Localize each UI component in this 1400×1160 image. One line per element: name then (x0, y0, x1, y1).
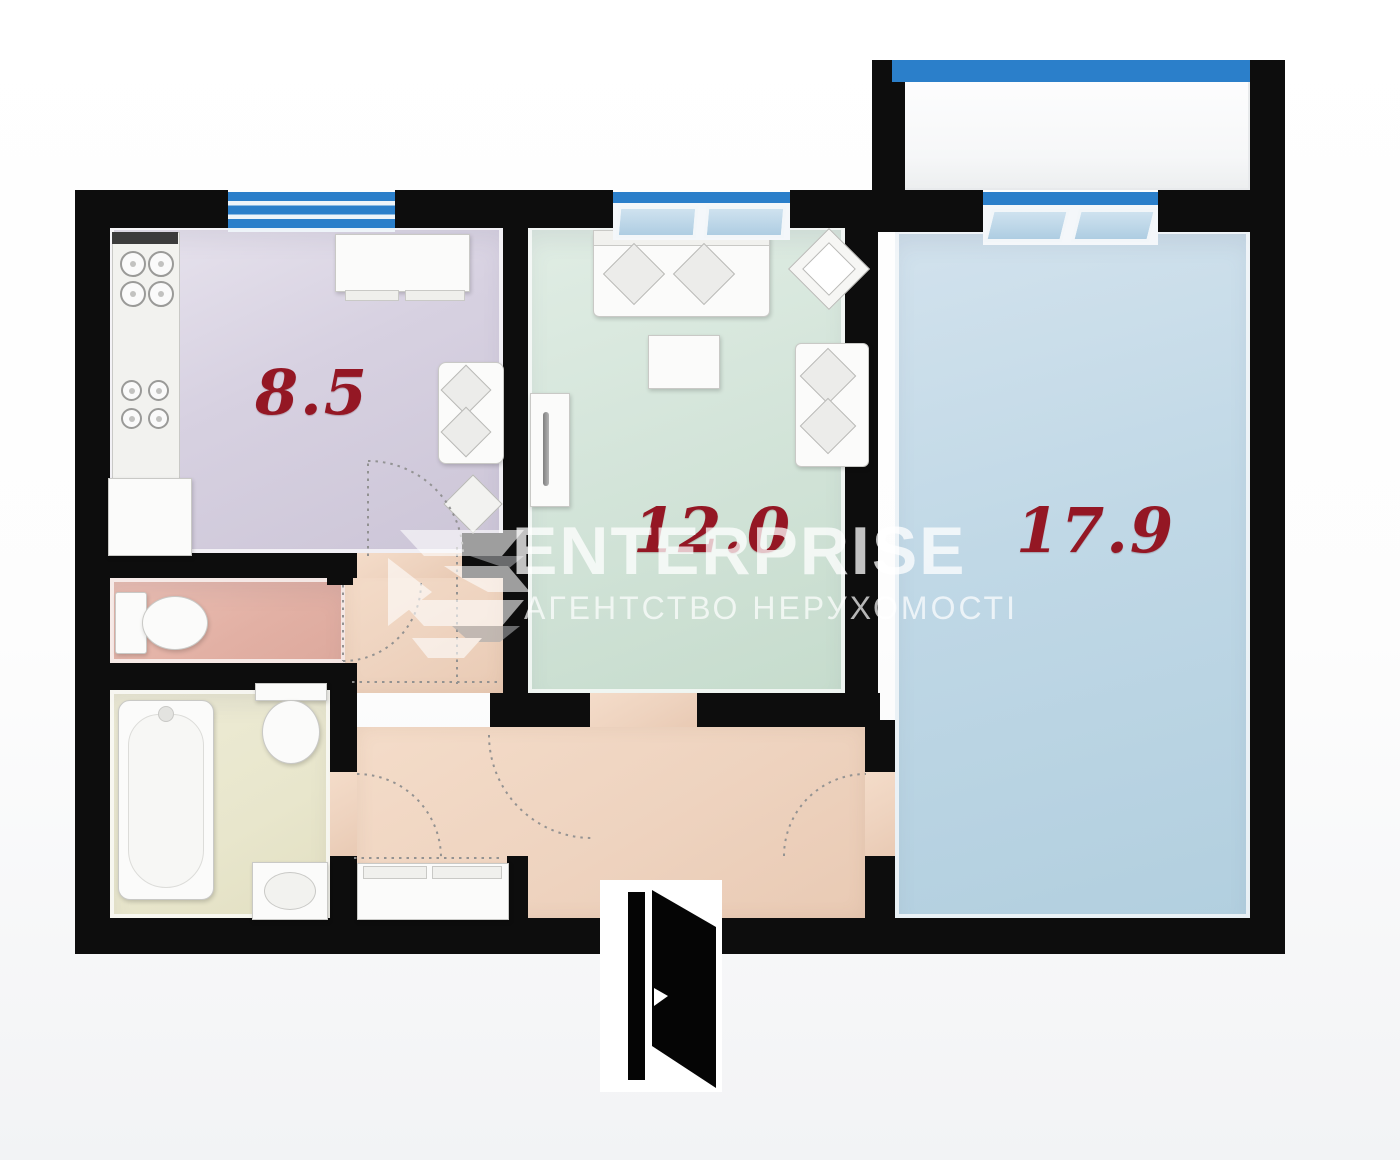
balcony-floor (892, 80, 1250, 190)
living-room-area-label: 12.0 (633, 494, 792, 567)
wall (75, 190, 228, 228)
living-window-icon (613, 192, 790, 203)
wall (722, 918, 1285, 954)
kitchen-area-label: 8.5 (255, 356, 369, 429)
stove-burner-icon (120, 281, 146, 307)
wall (1250, 60, 1285, 952)
hallway-floor (357, 553, 462, 578)
kitchen-cabinet-icon (335, 234, 470, 292)
bedroom-area-label: 17.9 (1016, 494, 1175, 567)
hallway-floor (345, 566, 503, 693)
wall (865, 856, 895, 918)
wall (507, 856, 528, 918)
cooktop-burner-icon (148, 380, 169, 401)
wall (503, 190, 528, 727)
hallway-floor (330, 772, 357, 856)
faucet-icon (158, 706, 174, 722)
bedroom-window-icon (983, 205, 1158, 245)
stove-icon (112, 232, 178, 244)
living-window-icon (613, 203, 790, 240)
bathtub-icon (128, 714, 204, 888)
bidet-icon (255, 683, 327, 701)
wall (75, 918, 600, 954)
window-pane-icon (616, 206, 699, 238)
wall (490, 693, 590, 727)
floor-plan: 8.5 12.0 17.9 (0, 0, 1400, 1160)
cooktop-burner-icon (121, 380, 142, 401)
entrance-opening (600, 880, 722, 1092)
toilet-icon (142, 596, 208, 650)
hallway-floor (590, 693, 697, 727)
wall (872, 190, 983, 232)
wall (462, 533, 503, 578)
balcony-glazing-icon (892, 60, 1250, 82)
bedroom-window-icon (983, 192, 1158, 205)
wall (75, 553, 357, 578)
cooktop-burner-icon (148, 408, 169, 429)
hall-wardrobe-icon (363, 866, 427, 879)
stove-burner-icon (148, 281, 174, 307)
stove-burner-icon (148, 251, 174, 277)
wardrobe-handle-icon (543, 412, 549, 486)
bidet-icon (262, 700, 320, 764)
wall (1158, 190, 1250, 232)
bedroom-floor (895, 230, 1250, 918)
sink-icon (264, 872, 316, 910)
kitchen-cabinet-icon (345, 290, 399, 301)
wall (330, 856, 357, 918)
wall (865, 720, 895, 772)
wall (330, 663, 357, 772)
window-pane-icon (704, 206, 787, 238)
fridge-icon (108, 478, 192, 556)
kitchen-cabinet-icon (405, 290, 465, 301)
hall-wardrobe-icon (432, 866, 502, 879)
cooktop-burner-icon (121, 408, 142, 429)
coffee-table-icon (648, 335, 720, 389)
stove-burner-icon (120, 251, 146, 277)
window-pane-icon (984, 209, 1070, 242)
wall (327, 553, 353, 585)
wardrobe-icon (530, 393, 570, 507)
window-pane-icon (1071, 209, 1157, 242)
kitchen-window-icon (228, 192, 395, 232)
hallway-floor (865, 772, 895, 856)
